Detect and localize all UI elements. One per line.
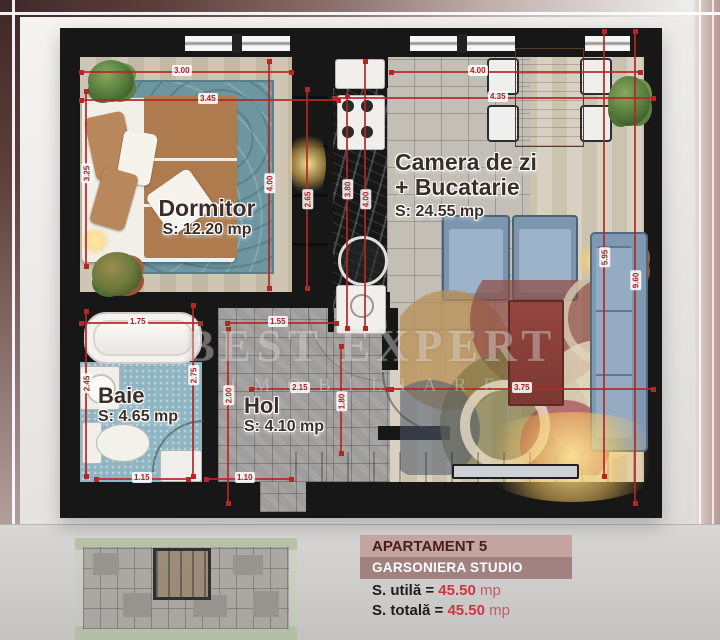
dimension-label: 3.00 xyxy=(172,65,192,76)
area-value: 45.50 xyxy=(447,602,485,619)
dimension-label: 5.95 xyxy=(599,248,610,268)
building-mini-plan xyxy=(75,538,297,640)
dimension-label: 2.65 xyxy=(302,190,313,210)
room-label-hol: Hol S: 4.10 mp xyxy=(244,394,374,435)
room-name: Baie xyxy=(98,384,218,408)
dimension-label: 9.60 xyxy=(630,271,641,291)
dimension-label: 2.15 xyxy=(290,382,310,393)
room-area: S: 4.10 mp xyxy=(244,418,374,435)
floor-plan: 3.003.454.004.351.751.552.153.751.151.10… xyxy=(60,28,662,518)
room-name: Dormitor xyxy=(122,196,292,221)
dimension-line xyxy=(634,30,636,505)
dimension-line xyxy=(227,328,229,505)
dimension-label: 2.45 xyxy=(81,374,92,394)
dimension-label: 2.00 xyxy=(223,386,234,406)
apartment-subtitle: GARSONIERA STUDIO xyxy=(360,557,572,579)
area-unit: mp xyxy=(480,582,501,599)
room-name: Camera de zi xyxy=(395,150,605,175)
area-value: 45.50 xyxy=(438,582,476,599)
dimension-label: 3.25 xyxy=(81,164,92,184)
dimension-label: 1.55 xyxy=(268,316,288,327)
frame-white-line-horizontal xyxy=(0,12,720,15)
dimension-label: 4.00 xyxy=(360,190,371,210)
room-label-living: Camera de zi + Bucatarie S: 24.55 mp xyxy=(395,150,605,220)
area-row-utila: S. utilă = 45.50 mp xyxy=(360,579,572,599)
room-name: Hol xyxy=(244,394,374,418)
area-unit: mp xyxy=(489,602,510,619)
dimension-line xyxy=(250,388,390,390)
dimension-label: 2.75 xyxy=(188,366,199,386)
dimension-label: 1.10 xyxy=(235,472,255,483)
dimension-label: 1.75 xyxy=(128,316,148,327)
room-label-dormitor: Dormitor S: 12.20 mp xyxy=(122,196,292,238)
room-name-2: + Bucatarie xyxy=(395,175,605,200)
dimension-label: 4.35 xyxy=(488,91,508,102)
apartment-title: APARTAMENT 5 xyxy=(360,535,572,557)
area-label: S. totală = xyxy=(372,602,443,619)
dimension-label: 4.00 xyxy=(468,65,488,76)
brochure-page: 3.003.454.004.351.751.552.153.751.151.10… xyxy=(0,0,720,640)
apartment-info-panel: APARTAMENT 5 GARSONIERA STUDIO S. utilă … xyxy=(360,535,572,619)
area-row-totala: S. totală = 45.50 mp xyxy=(360,599,572,619)
area-label: S. utilă = xyxy=(372,582,434,599)
room-area: S: 12.20 mp xyxy=(122,221,292,238)
dimension-label: 1.15 xyxy=(132,472,152,483)
dimension-label: 3.80 xyxy=(342,180,353,200)
dimension-line xyxy=(85,310,87,478)
room-area: S: 24.55 mp xyxy=(395,203,605,220)
room-label-baie: Baie S: 4.65 mp xyxy=(98,384,218,425)
dimension-overlay: 3.003.454.004.351.751.552.153.751.151.10… xyxy=(60,28,662,518)
dimension-label: 3.45 xyxy=(198,93,218,104)
room-area: S: 4.65 mp xyxy=(98,408,218,425)
dimension-label: 4.00 xyxy=(264,174,275,194)
dimension-label: 3.75 xyxy=(512,382,532,393)
dimension-line xyxy=(346,95,348,330)
mini-plan-highlighted-unit xyxy=(153,548,211,600)
